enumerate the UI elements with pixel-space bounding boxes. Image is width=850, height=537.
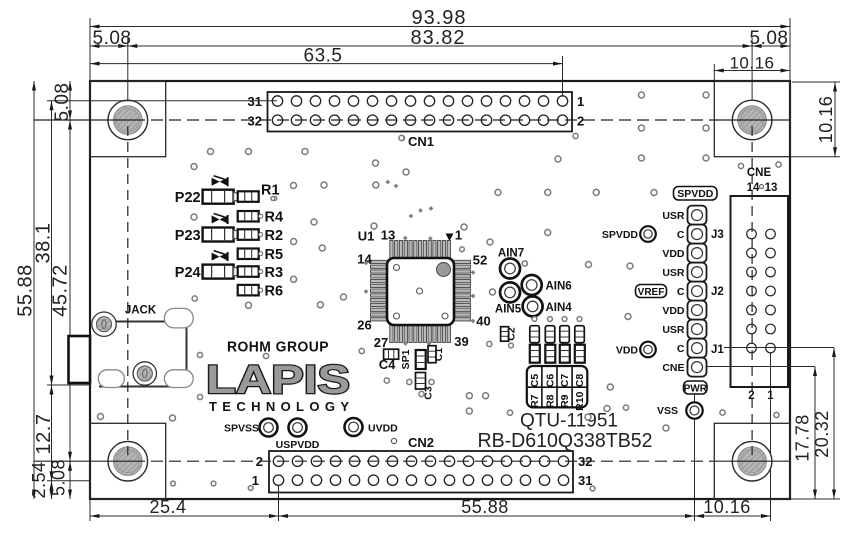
svg-text:5.08: 5.08 (93, 28, 132, 49)
svg-text:USR: USR (662, 267, 685, 279)
svg-text:SPVDD: SPVDD (602, 229, 639, 241)
svg-text:5.08: 5.08 (49, 459, 69, 496)
svg-text:U1: U1 (358, 229, 375, 244)
svg-text:SPVSS: SPVSS (224, 423, 259, 435)
svg-text:ROHM GROUP: ROHM GROUP (227, 340, 329, 356)
svg-text:AIN4: AIN4 (546, 302, 573, 314)
svg-text:USR: USR (662, 324, 685, 336)
svg-text:AIN7: AIN7 (498, 248, 524, 260)
svg-text:32: 32 (248, 113, 262, 128)
svg-text:SP1: SP1 (400, 349, 412, 369)
svg-text:14: 14 (747, 182, 760, 194)
svg-text:R2: R2 (265, 228, 284, 244)
svg-text:JACK: JACK (125, 305, 157, 317)
svg-text:17.78: 17.78 (793, 414, 813, 462)
svg-text:CN1: CN1 (408, 134, 434, 149)
svg-text:93.98: 93.98 (411, 7, 466, 29)
svg-text:UVDD: UVDD (368, 423, 398, 435)
svg-text:10.16: 10.16 (816, 96, 836, 144)
svg-text:31: 31 (578, 473, 592, 488)
svg-text:2: 2 (577, 113, 584, 128)
svg-text:R5: R5 (265, 247, 284, 263)
svg-text:12.7: 12.7 (33, 414, 55, 455)
svg-text:C: C (677, 286, 685, 298)
svg-text:C5: C5 (529, 374, 541, 388)
svg-text:R4: R4 (265, 210, 284, 226)
svg-text:VDD: VDD (662, 248, 685, 260)
svg-text:5.08: 5.08 (750, 28, 789, 49)
svg-text:45.72: 45.72 (50, 264, 72, 317)
svg-text:13: 13 (765, 182, 778, 194)
svg-text:C2: C2 (506, 327, 518, 341)
svg-text:40: 40 (476, 314, 490, 329)
svg-text:C6: C6 (545, 374, 557, 388)
svg-text:2.54: 2.54 (29, 461, 49, 498)
svg-text:R10: R10 (574, 391, 586, 410)
svg-text:5.08: 5.08 (52, 83, 73, 122)
svg-text:CNE: CNE (662, 362, 684, 374)
svg-text:R3: R3 (265, 265, 284, 281)
svg-text:QTU-11951: QTU-11951 (520, 411, 618, 432)
svg-text:1: 1 (455, 228, 462, 243)
svg-text:P22: P22 (175, 190, 201, 206)
svg-text:VDD: VDD (616, 345, 639, 357)
svg-text:R1: R1 (261, 183, 280, 199)
svg-text:20.32: 20.32 (812, 410, 832, 458)
svg-text:C8: C8 (574, 374, 586, 388)
svg-text:C: C (677, 229, 685, 241)
svg-text:C: C (677, 343, 685, 355)
svg-text:63.5: 63.5 (304, 46, 343, 67)
svg-text:LAPIS: LAPIS (206, 358, 350, 402)
svg-text:SPVDD: SPVDD (677, 188, 714, 200)
svg-text:39: 39 (454, 334, 468, 349)
svg-text:R7: R7 (529, 394, 541, 408)
svg-text:R9: R9 (559, 394, 571, 408)
svg-text:C4: C4 (379, 357, 396, 372)
svg-text:27: 27 (374, 335, 388, 350)
svg-text:R6: R6 (265, 283, 284, 299)
svg-text:VDD: VDD (662, 305, 685, 317)
svg-text:10.16: 10.16 (729, 54, 774, 73)
svg-text:1: 1 (767, 390, 774, 402)
svg-text:RB-D610Q338TB52: RB-D610Q338TB52 (478, 430, 653, 452)
svg-text:C1: C1 (433, 348, 445, 362)
svg-text:38.1: 38.1 (33, 223, 55, 264)
svg-text:1: 1 (577, 94, 584, 109)
svg-text:USR: USR (662, 210, 685, 222)
svg-text:J3: J3 (711, 229, 724, 241)
svg-text:P23: P23 (175, 228, 201, 244)
svg-text:13: 13 (381, 228, 395, 243)
svg-text:C7: C7 (559, 374, 571, 388)
svg-text:31: 31 (248, 94, 262, 109)
svg-text:26: 26 (357, 318, 371, 333)
svg-text:83.82: 83.82 (410, 27, 465, 49)
svg-text:USPVDD: USPVDD (276, 439, 320, 451)
svg-text:VSS: VSS (657, 405, 678, 417)
svg-text:PWR: PWR (684, 384, 708, 395)
svg-text:AIN6: AIN6 (546, 281, 572, 293)
svg-text:VREF: VREF (638, 287, 665, 298)
svg-text:P24: P24 (175, 265, 201, 281)
svg-text:CN2: CN2 (408, 435, 434, 450)
svg-text:J2: J2 (711, 286, 724, 298)
svg-text:AIN5: AIN5 (495, 304, 522, 316)
svg-text:52: 52 (473, 253, 487, 268)
svg-text:R8: R8 (545, 394, 557, 408)
svg-text:55.88: 55.88 (15, 264, 37, 317)
svg-text:CNE: CNE (747, 167, 772, 179)
svg-text:J1: J1 (711, 344, 724, 356)
